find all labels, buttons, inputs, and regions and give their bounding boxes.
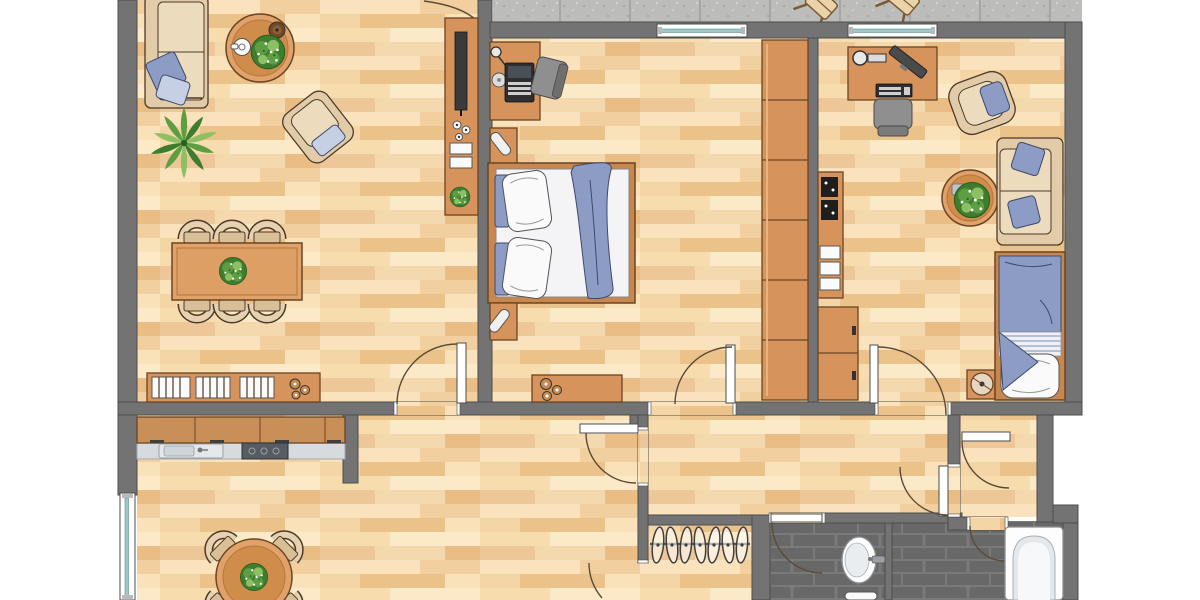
dining-table-group: [172, 224, 302, 319]
window-kitchen: [120, 493, 135, 600]
office-desk: [848, 45, 937, 100]
shelf-tray: [450, 157, 472, 168]
dresser: [818, 307, 858, 400]
keyboard: [876, 84, 912, 97]
coffee-table-plant: [251, 35, 285, 69]
kitchen-table-plant: [240, 563, 267, 590]
game-pad: [821, 177, 838, 197]
nightstand-top: [489, 128, 517, 165]
nightstand-bottom: [487, 303, 517, 340]
bedroom-sideboard: [532, 375, 622, 402]
laptop: [505, 63, 534, 102]
window-bedroom: [657, 24, 747, 37]
floor-plan-canvas: [0, 0, 1200, 600]
bookshelf-sideboard: [147, 373, 320, 402]
office-sofa: [997, 138, 1063, 245]
wall-right: [1065, 22, 1082, 402]
single-bed: [995, 252, 1065, 400]
plant-side-table: [942, 170, 998, 226]
pillow-set: [495, 169, 553, 233]
bathroom: [1005, 527, 1063, 600]
bathtub: [1005, 527, 1063, 600]
wardrobe: [762, 40, 808, 400]
vestibule-floor: [960, 415, 1037, 517]
office-chair: [874, 99, 912, 136]
wall-left: [118, 0, 137, 495]
kitchen-cabinets: [137, 417, 345, 443]
drum-stool: [967, 370, 998, 399]
wall-top: [490, 22, 1082, 38]
desk-lamp: [853, 51, 867, 65]
wall-corner-piece: [1053, 505, 1078, 523]
tv-sideboard: [445, 18, 478, 215]
corridor-floor: [648, 415, 948, 523]
pillow-set: [495, 236, 553, 300]
window-kids-room: [848, 24, 937, 37]
wall-vestibule-right: [1037, 415, 1053, 522]
wall-wc-left: [752, 515, 770, 600]
kitchen-sink: [159, 444, 223, 458]
stove: [242, 443, 288, 459]
game-pad: [821, 200, 838, 220]
shelf-unit: [818, 172, 843, 298]
shelf-tray: [450, 143, 472, 154]
wall-wc-bath-divider: [885, 523, 892, 600]
sofa-pillow: [1007, 195, 1041, 229]
balcony-paving: [493, 0, 1082, 22]
dining-table-plant: [219, 257, 246, 284]
faucet: [872, 556, 885, 563]
tv: [455, 32, 467, 110]
sofa: [145, 0, 208, 108]
wall-bedroom-kidsroom: [808, 38, 818, 402]
sideboard-plant: [450, 187, 470, 207]
kitchen-table-group: [203, 529, 306, 600]
coffee-table: [226, 14, 294, 82]
double-bed: [488, 163, 635, 303]
floor-plan-page: [0, 0, 1200, 600]
toilet: [845, 592, 877, 600]
wall-bath-right: [1063, 523, 1078, 600]
desk-lamp: [491, 47, 501, 57]
side-table-plant: [954, 182, 989, 217]
